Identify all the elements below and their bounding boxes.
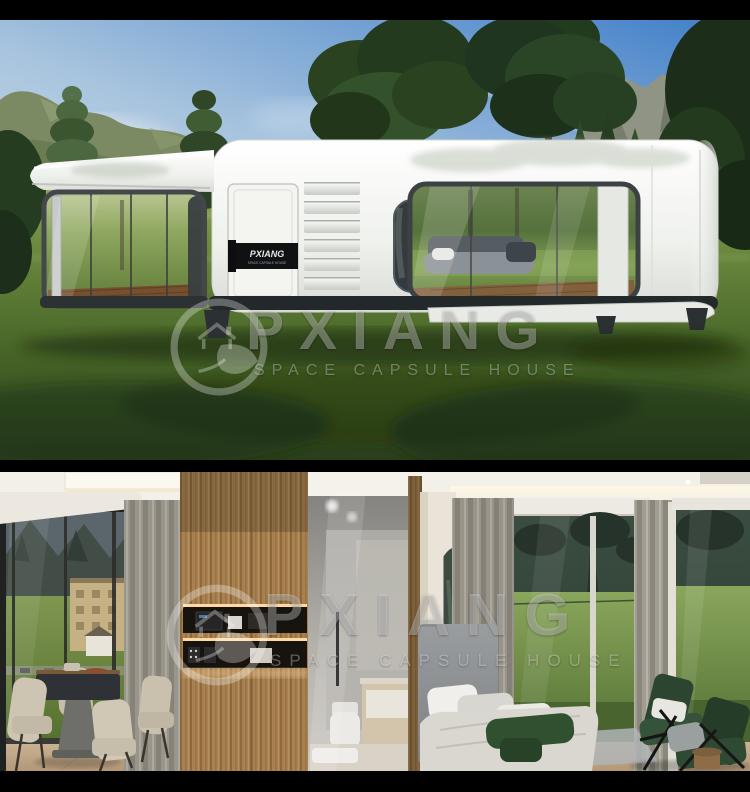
bathroom-mirror: [356, 540, 408, 670]
door-brand-text: PXIANG: [250, 249, 285, 259]
house-door: PXIANG SPACE CAPSULE HOUSE: [228, 184, 298, 302]
side-table: [692, 748, 722, 770]
glass-bedroom: [410, 184, 638, 308]
interior-scene: [0, 472, 750, 771]
glass-lounge: [40, 192, 208, 308]
watermark-logo: [168, 296, 270, 398]
leaf-icon: [196, 632, 257, 663]
exterior-scene: PXIANG SPACE CAPSULE HOUSE: [0, 20, 750, 460]
door-brand-subtext: SPACE CAPSULE HOUSE: [248, 261, 287, 265]
watermark-logo: [164, 582, 270, 688]
leaf-icon: [199, 344, 258, 374]
letterbox-bar-top: [0, 0, 750, 20]
interior-photo: PXIANG SPACE CAPSULE HOUSE: [0, 472, 750, 771]
logo-circle: [174, 302, 264, 392]
vanity: [360, 678, 414, 746]
letterbox-bar-bottom: [0, 771, 750, 792]
logo-circle: [170, 588, 263, 681]
exterior-photo: PXIANG SPACE CAPSULE HOUSE: [0, 20, 750, 460]
letterbox-bar-middle: [0, 460, 750, 472]
structural-column: [598, 186, 628, 298]
door-brand-plate: PXIANG SPACE CAPSULE HOUSE: [228, 240, 298, 272]
product-photo-collage: PXIANG SPACE CAPSULE HOUSE: [0, 0, 750, 792]
bathroom: [308, 472, 422, 771]
